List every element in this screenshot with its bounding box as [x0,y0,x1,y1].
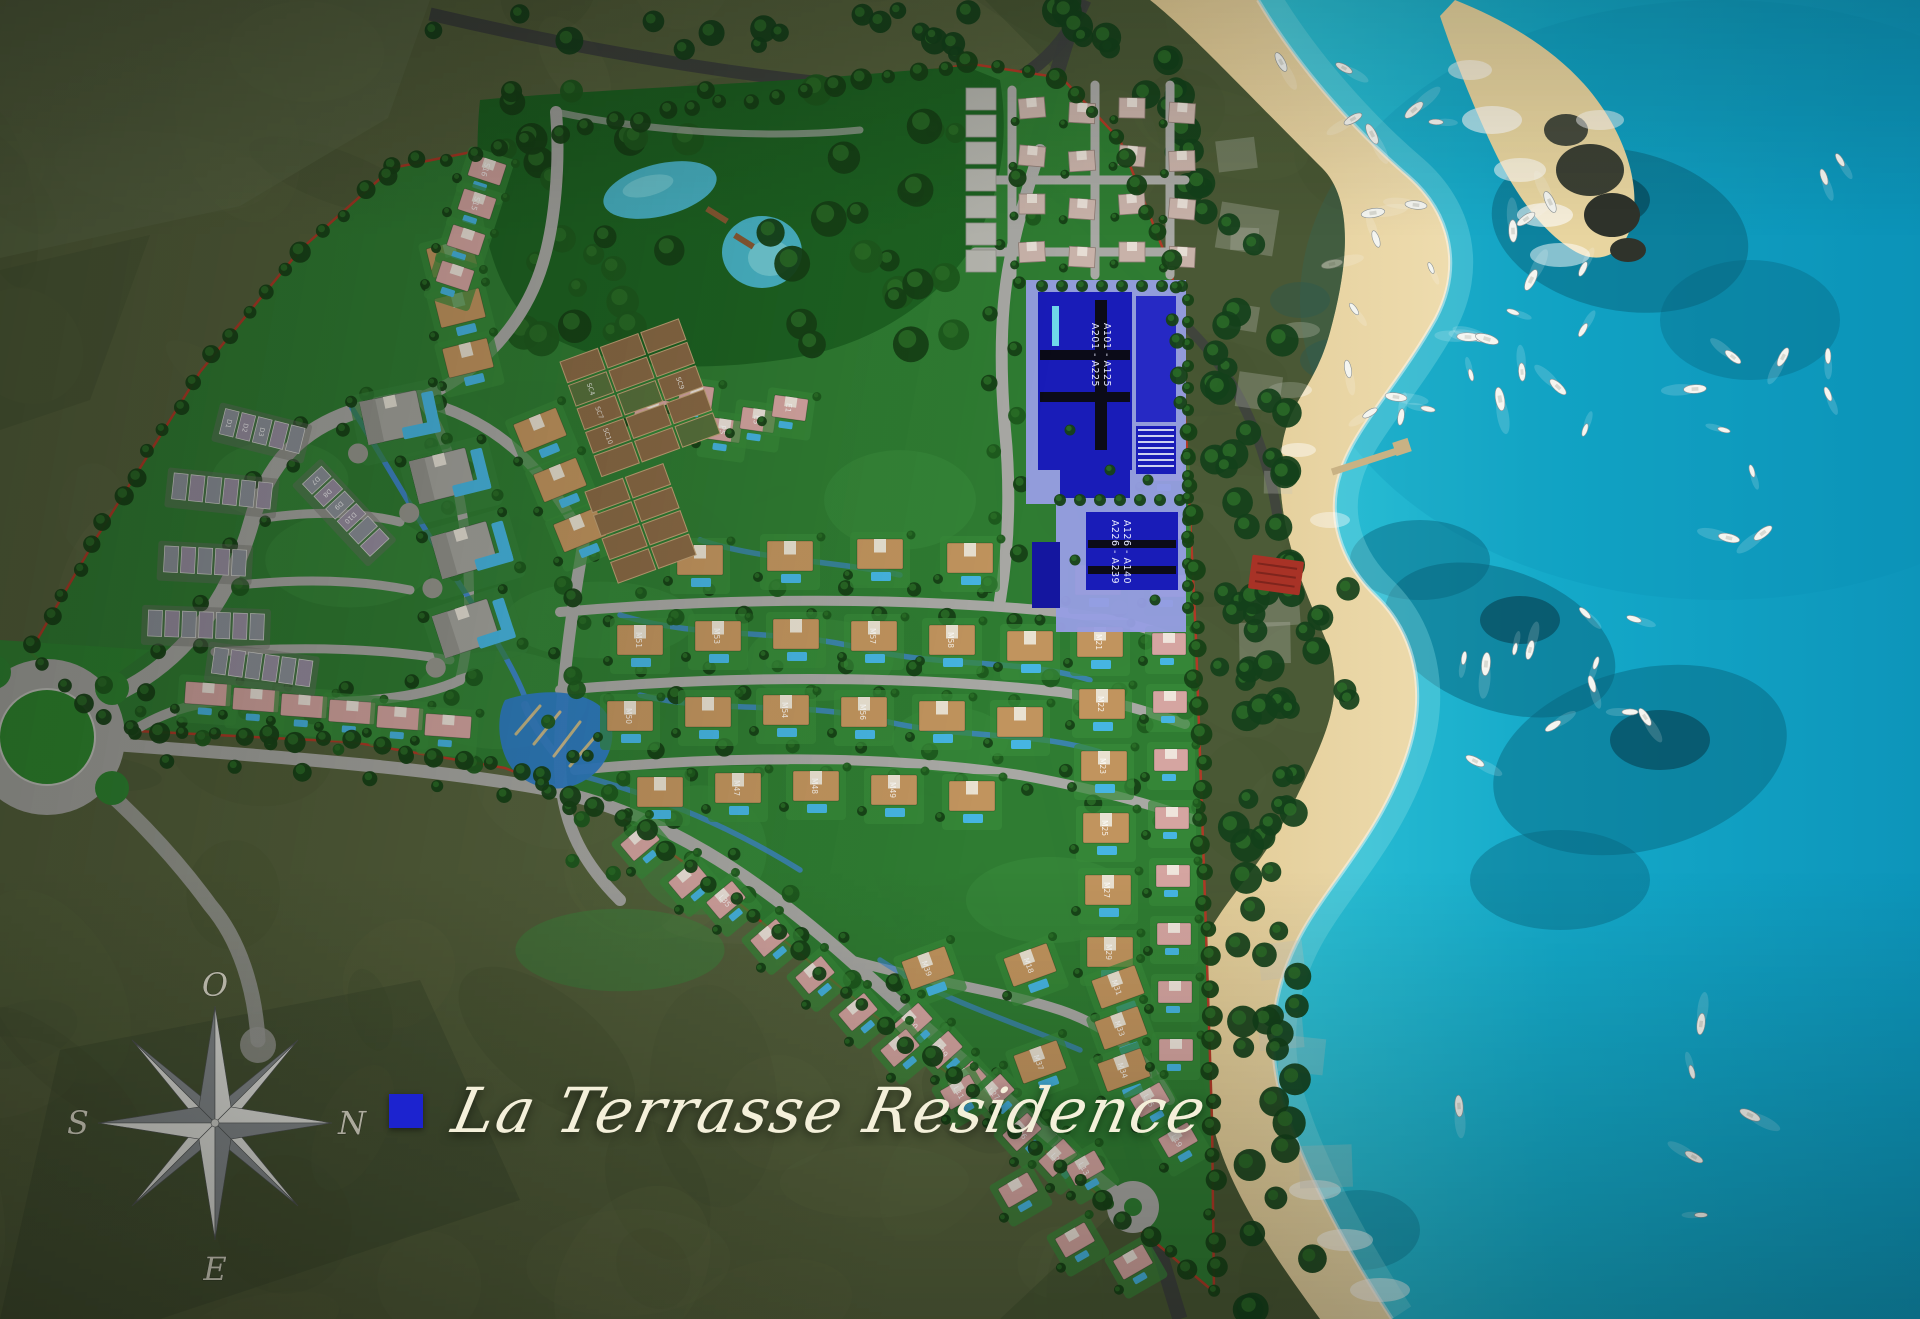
villa-label: M47 [732,780,741,796]
tree [637,819,658,840]
tree [922,1045,943,1066]
tree [74,694,94,714]
tree [228,760,242,774]
tree [1191,723,1213,745]
tree [1021,783,1034,796]
tree [1166,313,1179,326]
tan-villa [983,699,1056,757]
tree [93,513,111,531]
compass-letter-s: S [67,1104,89,1142]
tan-villa: M57 [837,613,910,671]
tree [1114,494,1126,506]
tree [1201,980,1219,998]
tree [1182,492,1194,504]
palm-tree [1272,398,1302,428]
tree [1193,780,1212,799]
tree [1196,755,1212,771]
palm-tree [510,4,529,23]
tree [1203,1208,1215,1220]
tree [1142,888,1152,898]
tree [900,173,933,206]
legend-swatch-icon [388,1093,424,1129]
tree [893,326,929,362]
tree [1201,1030,1221,1050]
tree [997,535,1006,544]
tree [468,147,483,162]
tree [83,536,100,553]
tree [979,617,988,626]
tree [1139,714,1149,724]
tree [1022,65,1035,78]
tree [577,616,592,631]
tree [933,574,943,584]
tree [700,876,716,892]
tree [630,112,651,133]
tree [850,68,872,90]
villa-label: M51 [634,632,643,648]
villa-label: M49 [888,782,897,798]
tree [1131,743,1140,752]
villa-label: M50 [624,708,633,724]
clearing-pad [1299,1144,1353,1188]
tree [568,278,587,297]
tree [667,617,676,626]
villa-label: M48 [810,778,819,794]
tree [771,924,787,940]
tree [847,202,869,224]
tree [746,909,760,923]
palm-tree [1218,811,1250,843]
tree [1068,86,1085,103]
tree [840,986,852,998]
palm-tree [1253,650,1284,681]
tan-villa: M53 [681,613,754,671]
tree [901,613,910,622]
tree [945,123,965,143]
legend-color-square [389,1094,423,1128]
tree [244,306,257,319]
palm-tree [1240,1221,1266,1247]
tree [1074,494,1086,506]
tree [1141,830,1151,840]
palm-tree [643,11,665,33]
tree [1196,864,1213,881]
tree [897,1037,914,1054]
palm-tree [1280,799,1308,827]
tree [1056,280,1068,292]
tree [790,940,810,960]
tree [1035,615,1046,626]
tree [1194,857,1203,866]
plot-pad [966,115,996,137]
tree [635,587,647,599]
tree [1073,968,1083,978]
tree [823,611,832,620]
palm-tree [1205,373,1237,405]
tree [398,746,413,761]
palm-tree [1252,942,1277,967]
tree [765,765,774,774]
unit-range-label: A126 - A140 [1121,520,1132,584]
tree [663,576,673,586]
tree [174,400,189,415]
tree [1149,223,1167,241]
palm-tree [1212,311,1241,340]
tree [548,647,560,659]
plot-pad [966,196,996,218]
tree [1138,205,1154,221]
tree [1007,341,1022,356]
tree [1170,281,1182,293]
legend-label: La Terrasse Residence [447,1080,1212,1142]
tree [857,806,867,816]
tree [1144,1004,1154,1014]
tree [907,531,916,540]
palm-tree [890,2,907,19]
tree [935,812,945,822]
unit-range-label: A101 - A125 [1101,323,1112,387]
tree [1086,106,1098,118]
tree [96,709,112,725]
palm-tree [699,20,725,46]
tree [616,771,631,786]
palm-tree [1218,213,1240,235]
tree [654,235,684,265]
tree [1201,946,1221,966]
tree [484,756,498,770]
tree [160,754,175,769]
tree [516,131,536,151]
tree [744,94,759,109]
tree [843,763,852,772]
tree [882,70,895,83]
palm-tree [956,0,980,24]
tree [1182,294,1194,306]
tree [1105,465,1116,476]
tree [501,81,522,102]
tree [74,563,88,577]
tree [843,570,853,580]
tree [1156,280,1168,292]
tree [756,219,784,247]
tree [1173,396,1187,410]
tan-villa [935,773,1008,831]
tree [1076,280,1088,292]
boat [1682,1212,1708,1218]
tree [1070,555,1081,566]
tree [774,246,810,282]
tree [681,652,691,662]
tree [601,256,626,281]
plot-pad [966,169,996,191]
tan-villa [933,535,1006,593]
villa-label: M22 [1096,696,1105,712]
tree [496,787,512,803]
tree [999,773,1008,782]
tree [1182,382,1194,394]
tree [1190,835,1210,855]
tree [1136,280,1148,292]
tree [1169,333,1185,349]
tree [850,240,883,273]
tree [1161,249,1182,270]
tree [1046,68,1067,89]
tree [1205,1148,1220,1163]
tree [731,892,743,904]
palm-tree [1273,1106,1306,1139]
tree [931,263,960,292]
palm-tree [1265,514,1292,541]
tree [938,319,969,350]
tree [1195,915,1204,924]
tree [128,468,147,487]
tree [603,656,613,666]
villa-label: M21 [1094,634,1103,650]
tree [563,666,582,685]
pink-villa [1142,857,1203,907]
tree [316,731,331,746]
tree [408,150,425,167]
tree [577,118,594,135]
palm-tree [925,27,942,44]
palm-tree [1265,1186,1288,1209]
resort-master-plan: M51M53M57M58M50M54M56M47M48M49M20M21M22M… [0,0,1920,1319]
tree [1059,764,1073,778]
villa-label: M53 [712,628,721,644]
compass-letter-e: E [202,1250,226,1288]
tree [1075,1174,1087,1186]
tree [1192,812,1207,827]
tree [1182,602,1194,614]
tree [336,423,350,437]
tree [1201,921,1217,937]
palm-tree [1203,340,1228,365]
tree [185,375,201,391]
tree [1206,1232,1227,1253]
tree [991,60,1004,73]
compass-letter-o: O [202,966,228,1004]
tree [745,613,754,622]
tan-villa: M49 [857,767,930,825]
tree [1180,423,1198,441]
tree [593,225,616,248]
palm-tree [771,24,789,42]
tree [827,728,837,738]
tree [236,728,254,746]
tree [659,101,677,119]
palm-tree [1247,694,1278,725]
tree [1189,639,1207,657]
tree [735,689,744,698]
tree [817,533,826,542]
tree [1063,658,1073,668]
tree [378,167,397,186]
palm-tree [1280,699,1299,718]
boat [1606,708,1638,716]
tree [1054,494,1066,506]
palm-tree [1233,1037,1254,1058]
pink-villa [1143,915,1204,965]
tree [1113,1211,1131,1229]
tree [333,744,345,756]
palm-tree [1227,1006,1259,1038]
tree [779,802,789,812]
tree [1065,425,1076,436]
tree [1145,1062,1155,1072]
tree [1067,782,1077,792]
lap-pool [1052,306,1059,346]
tree [560,80,583,103]
tree [981,375,998,392]
la-terrasse-building-complex: A101 - A125 A201 - A225 A126 - A140 A226… [1026,280,1194,632]
tree [1110,260,1119,269]
tree [687,769,696,778]
plot-pad [966,250,996,272]
tree [316,224,330,238]
tree [1196,973,1205,982]
tree [209,727,221,739]
tree [1207,1256,1228,1277]
palm-tree [1153,46,1183,76]
villa-label: M58 [946,632,955,648]
tree [135,706,147,718]
tan-villa: M25 [1069,805,1142,863]
tree [656,841,676,861]
tree [259,725,279,745]
tree [1065,720,1075,730]
tree [988,511,1001,524]
tree [759,650,769,660]
tree [1071,906,1081,916]
clearing-pad [1215,137,1258,173]
tree [593,732,603,742]
tree [956,51,978,73]
palm-tree [1215,456,1238,479]
tree [1010,212,1019,221]
villa-label: M23 [1098,758,1107,774]
tree [877,1017,896,1036]
tree [856,998,869,1011]
tree [362,771,377,786]
tree [23,636,41,654]
tan-villa [753,533,826,591]
tree [1182,316,1194,328]
palm-tree [1302,637,1330,665]
tree [813,687,822,696]
palm-tree [1261,862,1281,882]
palm-tree [1240,897,1265,922]
tree [55,589,68,602]
tree [405,674,420,689]
tree [58,679,72,693]
tree [424,748,443,767]
villa-label: M25 [1100,820,1109,836]
tan-villa: M51 [603,617,676,675]
tree [1193,799,1202,808]
pink-villa [1140,741,1201,791]
legend: La Terrasse Residence [388,1080,1206,1142]
tree [811,201,847,237]
palm-tree [674,39,695,60]
pink-villa [1145,1031,1206,1081]
palm-tree [1296,622,1315,641]
tree [684,100,700,116]
tree [35,657,49,671]
tan-villa: M50 [593,693,666,751]
tree [1053,1159,1067,1173]
tree [712,94,726,108]
unit-range-label: A201 - A225 [1089,323,1100,387]
tan-villa [843,531,916,589]
villa-label: M56 [858,704,867,720]
tree [582,750,594,762]
tree [1010,544,1028,562]
tree [137,683,155,701]
palm-tree [1243,233,1265,255]
tree [905,732,915,742]
tree [176,726,188,738]
tan-villa [993,623,1066,681]
tree [606,866,621,881]
tree [1116,148,1136,168]
tree [753,572,763,582]
tree [939,62,953,76]
tree [993,662,1003,672]
tree [986,444,1001,459]
tree [798,331,826,359]
pink-villa [409,704,485,758]
tree [684,860,697,873]
tree [1195,895,1211,911]
tree [969,693,978,702]
villa-label: M27 [1102,882,1111,898]
tree [95,676,113,694]
tree [982,306,997,321]
palm-tree [1266,1038,1289,1061]
tree [1109,129,1124,144]
palm-tree [1234,1149,1266,1181]
tan-villa: M48 [779,763,852,821]
tree [697,81,715,99]
tree [279,263,292,276]
beach-restaurant [1248,555,1304,596]
villa-label: M57 [868,628,877,644]
tree [1141,1226,1162,1247]
tan-villa: M54 [749,687,822,745]
tree [1143,946,1153,956]
tree [1183,504,1204,525]
tree [606,111,624,129]
palm-tree [1230,862,1262,894]
palm-tree [1210,658,1229,677]
tree [1182,580,1194,592]
tree [524,321,559,356]
tan-villa [671,689,744,747]
tree [373,736,391,754]
tree [910,63,928,81]
tree [115,486,134,505]
tree [560,786,582,808]
tree [1143,475,1154,486]
tree [1154,494,1166,506]
tree [443,690,459,706]
tree [614,809,631,826]
tree [1129,681,1138,690]
tree [1137,929,1146,938]
palm-tree [1238,789,1258,809]
tree [1135,867,1144,876]
villa-label: E1 [783,402,793,413]
